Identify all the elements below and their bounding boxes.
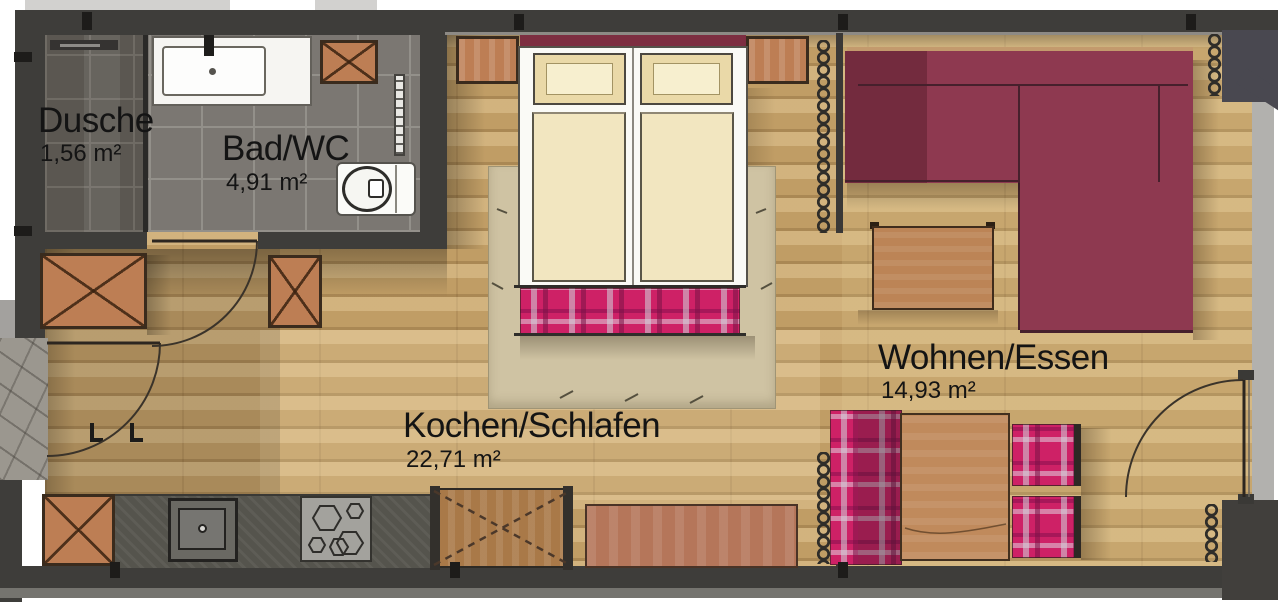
towel-radiator bbox=[394, 74, 405, 156]
pillow-right-inner bbox=[653, 63, 720, 95]
dining-table bbox=[900, 413, 1010, 561]
shadow bbox=[147, 255, 171, 335]
room-label-bad-wc: Bad/WC bbox=[222, 131, 349, 168]
timber-column-bath-corner bbox=[320, 40, 378, 84]
dining-chair bbox=[1012, 424, 1080, 486]
room-area-wohnen-essen: 14,93 m² bbox=[881, 378, 976, 403]
balcony-door-frame bbox=[1238, 370, 1254, 380]
tall-cabinet-post bbox=[563, 486, 573, 570]
dining-chair bbox=[1012, 496, 1080, 558]
shadow bbox=[520, 336, 755, 360]
faucet-dot bbox=[209, 68, 216, 75]
mattress-right bbox=[640, 112, 734, 282]
sofa-shaded-cushion bbox=[845, 51, 927, 183]
nightstand-left bbox=[456, 36, 519, 84]
tall-cabinet bbox=[430, 488, 573, 568]
cooktop bbox=[300, 496, 372, 562]
sofa-back-line bbox=[858, 84, 1188, 86]
room-area-kochen-schlafen: 22,71 m² bbox=[406, 447, 501, 472]
mattress-left bbox=[532, 112, 626, 282]
floor-plan: Dusche 1,56 m² Bad/WC 4,91 m² Kochen/Sch… bbox=[0, 0, 1278, 602]
shadow bbox=[858, 310, 998, 325]
bottom-wall bbox=[0, 566, 1278, 588]
sideboard bbox=[585, 504, 798, 568]
bathroom-east-wall bbox=[420, 33, 447, 249]
left-exterior-stub bbox=[0, 300, 15, 342]
door-stop-mark bbox=[130, 423, 143, 442]
toilet-flush bbox=[368, 179, 384, 198]
bed-center-line bbox=[632, 48, 634, 285]
bottom-right-wall-block bbox=[1222, 500, 1278, 600]
room-area-dusche: 1,56 m² bbox=[40, 141, 121, 166]
sofa-seat-front-line bbox=[845, 180, 1020, 182]
kitchen-counter bbox=[115, 494, 452, 568]
shadow bbox=[1193, 60, 1219, 340]
corner-sofa-chaise bbox=[1020, 51, 1193, 332]
radiator-coil-partition-top bbox=[813, 40, 834, 233]
toilet-bowl bbox=[342, 166, 392, 212]
entry-stone-pad bbox=[0, 338, 48, 480]
sofa-arm-right-line bbox=[1158, 84, 1160, 182]
radiator-coil-bottom-right bbox=[1202, 504, 1221, 562]
shadow bbox=[1081, 428, 1111, 560]
room-label-dusche: Dusche bbox=[38, 103, 154, 140]
door-stop-mark bbox=[90, 423, 103, 442]
right-wall-strip bbox=[1252, 33, 1274, 570]
wardrobe bbox=[40, 253, 147, 329]
room-label-wohnen-essen: Wohnen/Essen bbox=[878, 340, 1109, 377]
bottom-wall-outer-band bbox=[0, 588, 1278, 598]
balcony-door-frame bbox=[1238, 494, 1254, 504]
pillow-left-inner bbox=[546, 63, 613, 95]
bathroom-south-wall bbox=[258, 232, 447, 249]
room-label-kochen-schlafen: Kochen/Schlafen bbox=[403, 408, 660, 445]
toilet-tank-line bbox=[395, 165, 397, 213]
dining-chair-backrest bbox=[1074, 424, 1081, 486]
sofa-chaise-end-line bbox=[1020, 330, 1193, 333]
partition-wall-top bbox=[836, 33, 843, 233]
foot-bench bbox=[520, 288, 740, 334]
timber-column-kitchen bbox=[42, 494, 115, 566]
timber-column-hall bbox=[268, 255, 322, 328]
tall-cabinet-post bbox=[430, 486, 440, 570]
nightstand-right bbox=[746, 36, 809, 84]
radiator-coil-top-right bbox=[1205, 34, 1224, 96]
room-area-bad-wc: 4,91 m² bbox=[226, 170, 307, 195]
kitchen-faucet-dot bbox=[198, 524, 207, 533]
shadow bbox=[847, 183, 1020, 209]
dining-bench-shade bbox=[858, 410, 902, 565]
dining-chair-backrest bbox=[1074, 496, 1081, 558]
coffee-table bbox=[872, 226, 994, 310]
faucet-icon bbox=[204, 34, 214, 56]
shower-drain-slot bbox=[60, 44, 100, 47]
